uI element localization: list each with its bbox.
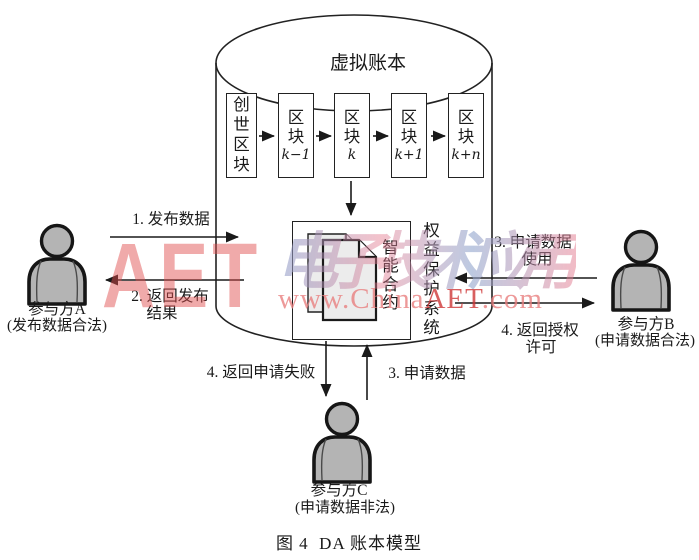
- block-k1: 区块 k+1: [391, 93, 427, 178]
- block-k1-index: k+1: [394, 148, 423, 163]
- participant-a-name: 参与方A: [0, 301, 114, 318]
- block-k1-label: 区块: [400, 108, 419, 148]
- flow-grant-label-line2: 许可: [481, 339, 601, 356]
- flow-publish-result-label-line1: 2. 返回发布: [110, 288, 230, 305]
- block-genesis: 创世区块: [226, 93, 257, 178]
- flow-request-use-label-line1: 3. 申请数据: [473, 234, 593, 251]
- participant-a-icon: [29, 226, 85, 305]
- participant-c-name: 参与方C: [279, 482, 399, 499]
- participant-b-name: 参与方B: [586, 316, 699, 333]
- block-k-label: 区块: [343, 108, 362, 148]
- flow-grant-label-line1: 4. 返回授权: [480, 322, 600, 339]
- block-k-1-label: 区块: [287, 108, 306, 148]
- block-k-index: k: [348, 148, 356, 163]
- participant-b-icon: [613, 232, 669, 311]
- flow-request-fail-label: 4. 返回申请失败: [181, 364, 341, 381]
- block-k: 区块 k: [334, 93, 370, 178]
- participant-a-note: (发布数据合法): [0, 318, 114, 335]
- block-kn-index: k+n: [451, 148, 480, 163]
- figure-caption: 图 4 DA 账本模型: [219, 529, 479, 554]
- block-k-1: 区块 k−1: [278, 93, 314, 178]
- block-kn-label: 区块: [457, 108, 476, 148]
- participant-b-note: (申请数据合法): [591, 333, 699, 350]
- participant-c-note: (申请数据非法): [285, 500, 405, 517]
- flow-request-label: 3. 申请数据: [367, 365, 487, 382]
- flow-request-use-label-line2: 使用: [477, 251, 597, 268]
- figure-da-ledger-model: 虚拟账本 创世区块 区块 k−1 区块 k 区块 k+1 区块 k+n 智能合约…: [0, 0, 699, 560]
- participant-c-icon: [314, 404, 370, 483]
- flow-publish-result-label-line2: 结果: [102, 305, 222, 322]
- rights-protection-system-label: 权益保护系统: [422, 221, 441, 338]
- flow-publish-label: 1. 发布数据: [111, 211, 231, 228]
- block-k-1-index: k−1: [281, 148, 310, 163]
- block-genesis-label: 创世区块: [232, 95, 251, 174]
- block-kn: 区块 k+n: [448, 93, 484, 178]
- smart-contract-label: 智能合约: [381, 239, 400, 313]
- virtual-ledger-title: 虚拟账本: [308, 48, 428, 75]
